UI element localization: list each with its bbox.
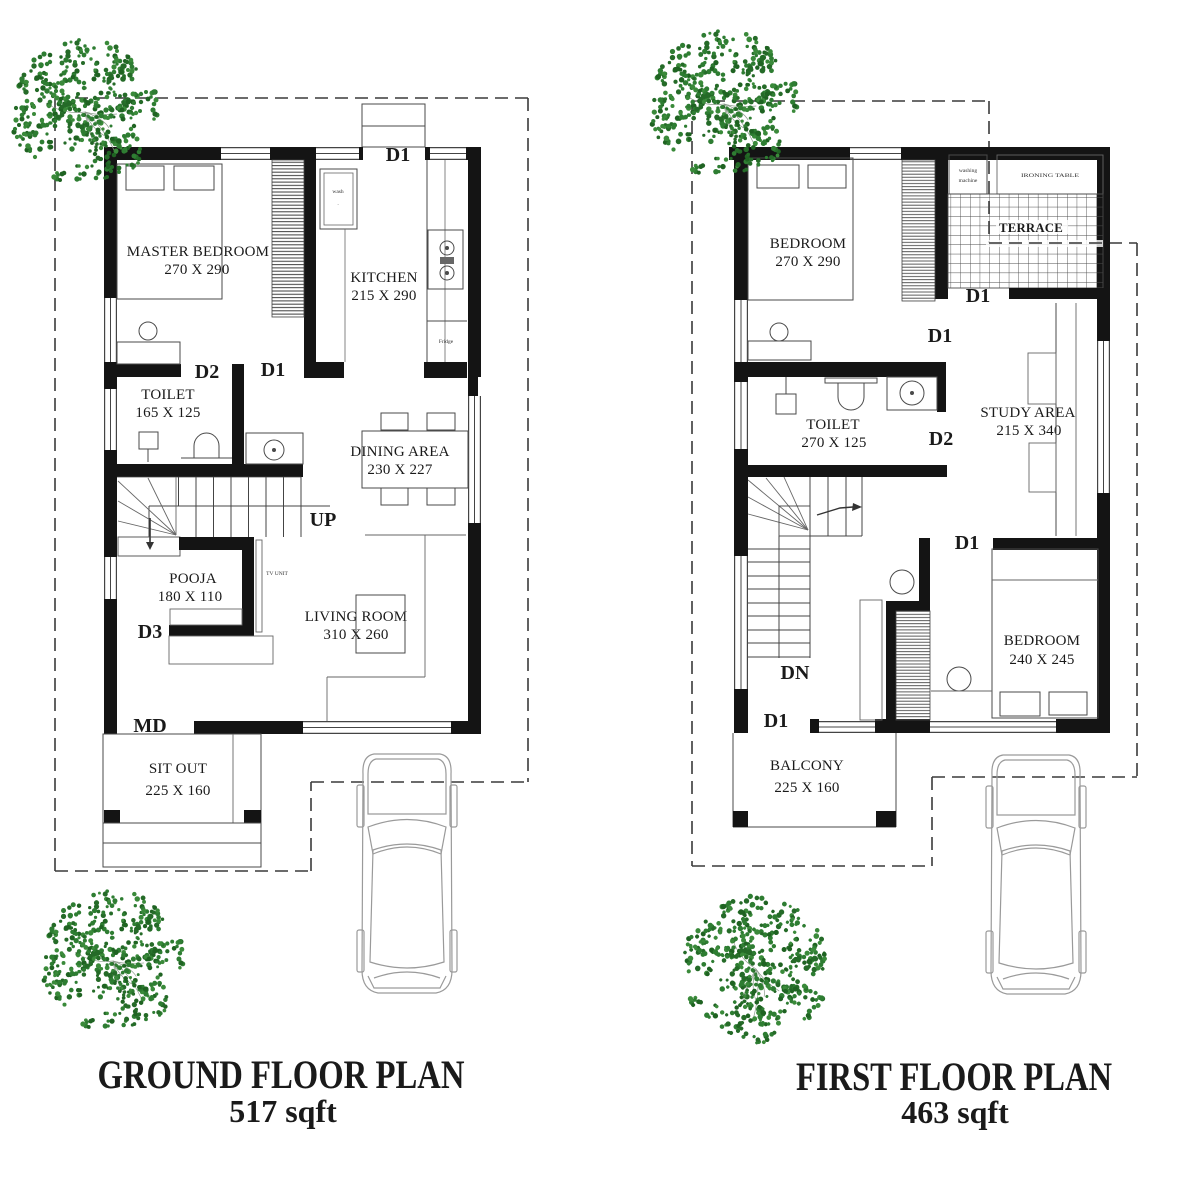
svg-text:D1: D1 [764,710,788,732]
svg-text:SIT OUT: SIT OUT [149,761,207,777]
svg-text:POOJA: POOJA [169,571,217,587]
svg-text:180 X 110: 180 X 110 [158,589,223,605]
svg-text:BEDROOM: BEDROOM [1004,633,1080,649]
svg-text:IRONING TABLE: IRONING TABLE [1021,173,1080,179]
svg-text:KITCHEN: KITCHEN [350,270,417,286]
svg-text:BEDROOM: BEDROOM [770,236,846,252]
svg-text:165 X 125: 165 X 125 [135,405,200,421]
svg-text:TV UNIT: TV UNIT [266,571,288,577]
svg-text:TOILET: TOILET [806,417,859,433]
svg-text:DN: DN [781,662,810,684]
svg-text:215 X 340: 215 X 340 [996,423,1061,439]
svg-text:270 X 290: 270 X 290 [164,262,229,278]
svg-text:463 sqft: 463 sqft [901,1094,1009,1130]
svg-text:D3: D3 [138,621,162,643]
svg-text:D2: D2 [929,428,953,450]
svg-text:D1: D1 [261,359,285,381]
svg-text:TOILET: TOILET [141,387,194,403]
svg-text:DINING AREA: DINING AREA [350,444,449,460]
svg-text:FIRST FLOOR PLAN: FIRST FLOOR PLAN [796,1054,1112,1099]
svg-text:D2: D2 [195,361,219,383]
svg-text:TERRACE: TERRACE [999,221,1063,235]
svg-text:GROUND FLOOR PLAN: GROUND FLOOR PLAN [98,1052,465,1097]
svg-text:270 X 125: 270 X 125 [801,435,866,451]
svg-text:215 X 290: 215 X 290 [351,288,416,304]
svg-text:UP: UP [310,509,337,531]
svg-text:D1: D1 [928,325,952,347]
svg-text:machine: machine [959,178,978,184]
svg-text:517 sqft: 517 sqft [229,1093,337,1129]
svg-text:D1: D1 [966,285,990,307]
svg-text:225 X 160: 225 X 160 [145,783,210,799]
svg-text:BALCONY: BALCONY [770,758,844,774]
svg-text:225 X 160: 225 X 160 [774,780,839,796]
svg-text:D1: D1 [386,144,410,166]
svg-text:MASTER BEDROOM: MASTER BEDROOM [127,244,269,260]
svg-text:STUDY AREA: STUDY AREA [980,405,1075,421]
svg-text:240 X 245: 240 X 245 [1009,652,1074,668]
svg-text:washing: washing [959,168,978,174]
svg-text:Fridge: Fridge [439,339,454,345]
svg-text:270 X 290: 270 X 290 [775,254,840,270]
svg-text:wash: wash [332,189,344,195]
svg-text:230 X 227: 230 X 227 [367,462,432,478]
svg-text:D1: D1 [955,532,979,554]
